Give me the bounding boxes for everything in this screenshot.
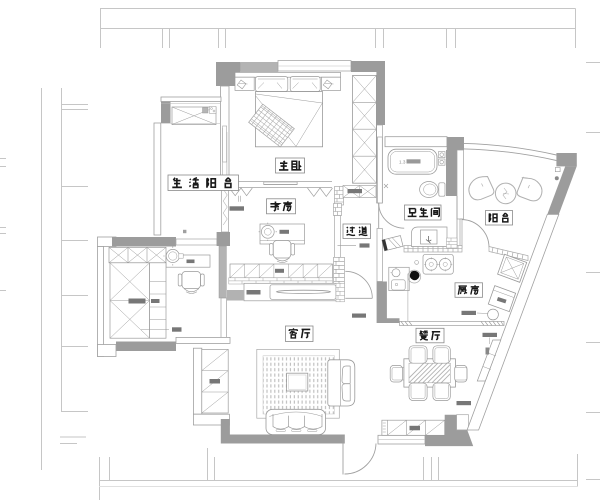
svg-text:1.3: 1.3 bbox=[399, 160, 406, 165]
